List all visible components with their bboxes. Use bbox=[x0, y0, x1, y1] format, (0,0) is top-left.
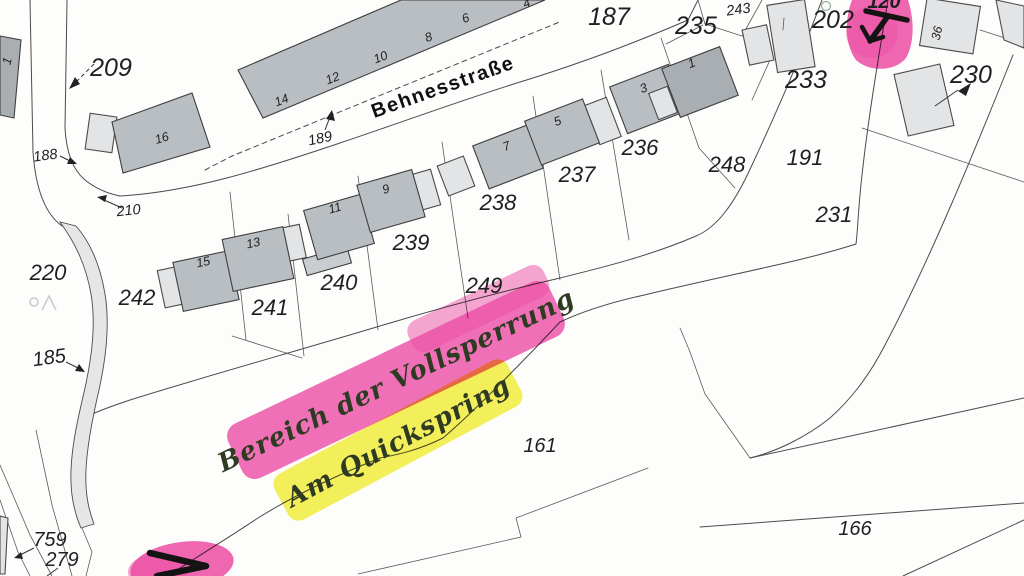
parcel-label-187: 187 bbox=[588, 3, 631, 31]
parcel-label-240: 240 bbox=[320, 270, 358, 295]
parcel-divider bbox=[752, 60, 770, 100]
building bbox=[767, 0, 815, 73]
parcel-label-185: 185 bbox=[31, 345, 68, 372]
parcel-label-243: 243 bbox=[724, 0, 751, 19]
parcel-divider bbox=[862, 128, 1024, 182]
road-edge bbox=[30, 0, 62, 226]
parcel-label-220: 220 bbox=[29, 260, 67, 285]
parcel-divider bbox=[680, 328, 750, 458]
arrowhead bbox=[326, 110, 335, 121]
cadastral-map: Bereich der Vollsperrung Am Quickspring … bbox=[0, 0, 1024, 576]
parcel-label-161: 161 bbox=[523, 435, 556, 457]
building bbox=[920, 0, 981, 54]
parcel-label-120: 120 bbox=[867, 0, 900, 13]
house-number-15: 15 bbox=[195, 254, 212, 271]
parcel-label-238: 238 bbox=[479, 190, 517, 215]
faint-circle-symbol bbox=[30, 298, 38, 306]
faint-triangle-symbol bbox=[42, 296, 56, 310]
arrowhead bbox=[75, 364, 85, 372]
parcel-label-242: 242 bbox=[118, 285, 156, 310]
parcel-label-237: 237 bbox=[558, 162, 596, 187]
parcel-label-279: 279 bbox=[44, 549, 78, 571]
map-svg: Bereich der Vollsperrung Am Quickspring … bbox=[0, 0, 1024, 576]
parcel-label-191: 191 bbox=[787, 145, 824, 170]
arrowhead bbox=[67, 157, 77, 164]
building bbox=[0, 36, 21, 118]
building-annex bbox=[437, 156, 475, 196]
building bbox=[996, 0, 1024, 48]
leader-185 bbox=[66, 362, 78, 368]
parcel-label-233: 233 bbox=[784, 66, 827, 94]
house-number-13: 13 bbox=[245, 235, 262, 252]
parcel-label-249: 249 bbox=[465, 273, 503, 298]
leader-759 bbox=[20, 548, 34, 555]
parcel-label-241: 241 bbox=[251, 295, 289, 320]
parcel-label-188: 188 bbox=[32, 146, 58, 165]
house-number-36: 36 bbox=[929, 25, 946, 42]
parcel-divider bbox=[750, 398, 1024, 458]
parcel-label-202: 202 bbox=[811, 6, 854, 34]
parcel-divider bbox=[358, 468, 648, 574]
building-annex bbox=[85, 113, 117, 152]
parcel-label-210: 210 bbox=[115, 202, 142, 221]
building bbox=[357, 170, 425, 233]
building-annex bbox=[742, 25, 774, 65]
road-edge bbox=[65, 0, 120, 196]
footpath-strip bbox=[60, 222, 107, 528]
parcel-label-209: 209 bbox=[89, 54, 132, 82]
road-edge-outer bbox=[750, 55, 1013, 458]
parcel-label-239: 239 bbox=[392, 230, 430, 255]
building bbox=[894, 64, 954, 136]
parcel-label-248: 248 bbox=[708, 152, 746, 177]
parcel-label-235: 235 bbox=[674, 12, 717, 40]
edge-sliver bbox=[0, 516, 8, 574]
parcel-label-166: 166 bbox=[838, 518, 872, 540]
parcel-divider bbox=[82, 528, 92, 576]
parcel-divider bbox=[232, 336, 302, 358]
parcel-label-231: 231 bbox=[815, 202, 853, 227]
parcel-divider bbox=[903, 520, 1024, 576]
parcel-label-230: 230 bbox=[949, 61, 992, 89]
parcel-label-236: 236 bbox=[621, 135, 659, 160]
parcel-label-759: 759 bbox=[33, 529, 66, 551]
arrowhead bbox=[69, 77, 80, 89]
leader-188 bbox=[60, 156, 70, 161]
